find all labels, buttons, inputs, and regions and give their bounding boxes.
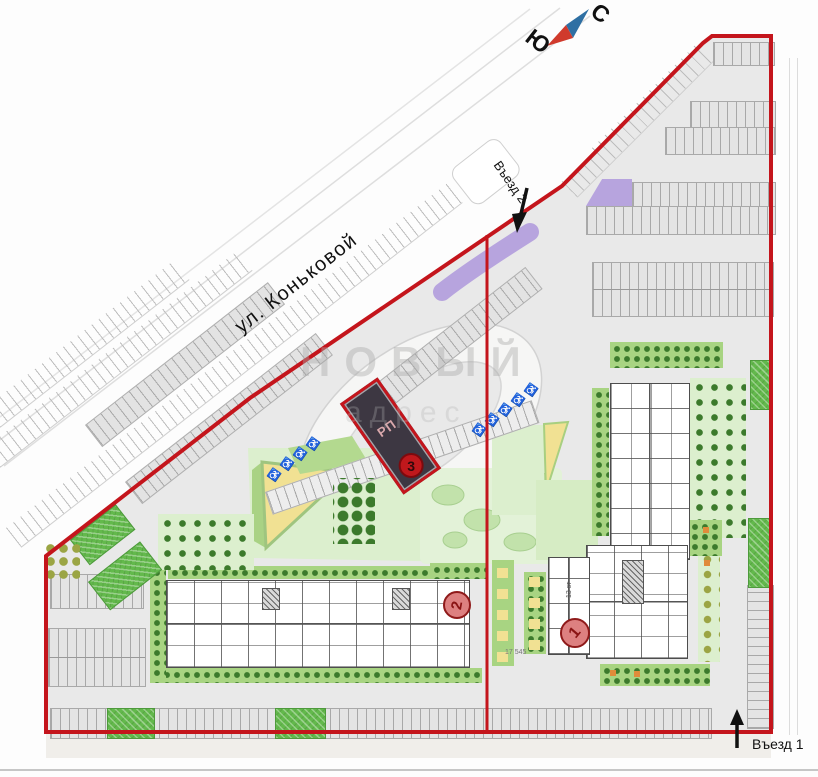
watermark-line2: адрес [345,396,468,430]
overlay-layer [0,0,818,777]
entrance1-label: Въезд 1 [752,736,804,752]
badge-2: 2 [443,591,471,619]
watermark-line1: НОВЫЙ [300,338,535,386]
floors-label: 13 эт [566,582,573,598]
dimension-label: 17 545 [505,649,526,656]
site-plan: { "compass": { "north_label": "С", "sout… [0,0,818,777]
page-bottom-rule [0,769,818,771]
badge-1: 1 [560,618,590,648]
entrance1-arrow [730,709,744,748]
